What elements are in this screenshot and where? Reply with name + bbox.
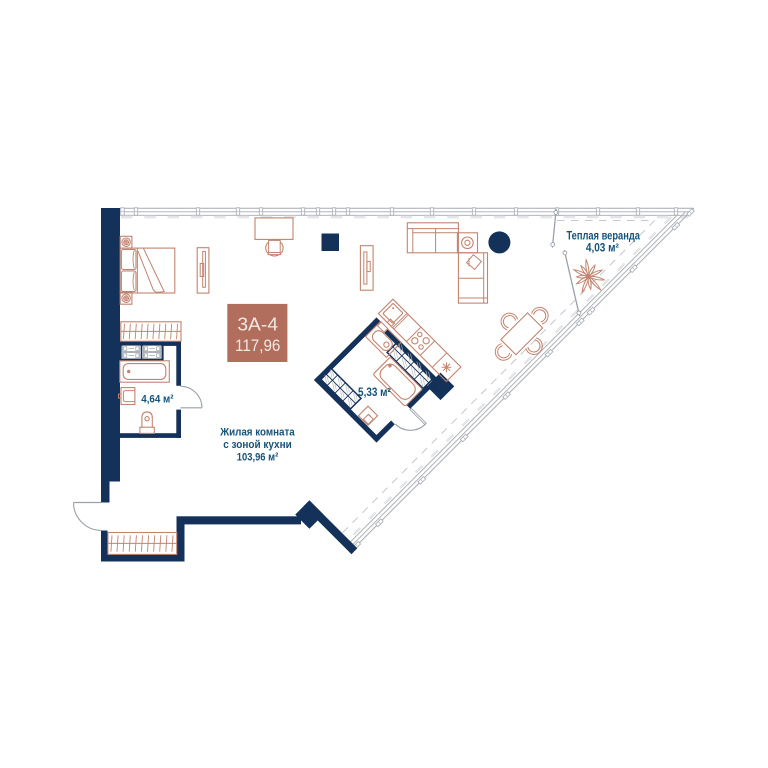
- svg-text:4,03 м²: 4,03 м²: [586, 242, 619, 254]
- svg-text:103,96 м²: 103,96 м²: [237, 452, 279, 464]
- svg-text:Жилая комната: Жилая комната: [219, 426, 295, 438]
- svg-text:5,33 м²: 5,33 м²: [358, 385, 391, 399]
- svg-text:3А-4: 3А-4: [237, 314, 278, 334]
- svg-text:с зоной кухни: с зоной кухни: [223, 439, 292, 451]
- svg-text:4,64 м²: 4,64 м²: [141, 394, 174, 406]
- svg-text:Теплая веранда: Теплая веранда: [566, 230, 640, 242]
- svg-text:117,96: 117,96: [235, 336, 280, 355]
